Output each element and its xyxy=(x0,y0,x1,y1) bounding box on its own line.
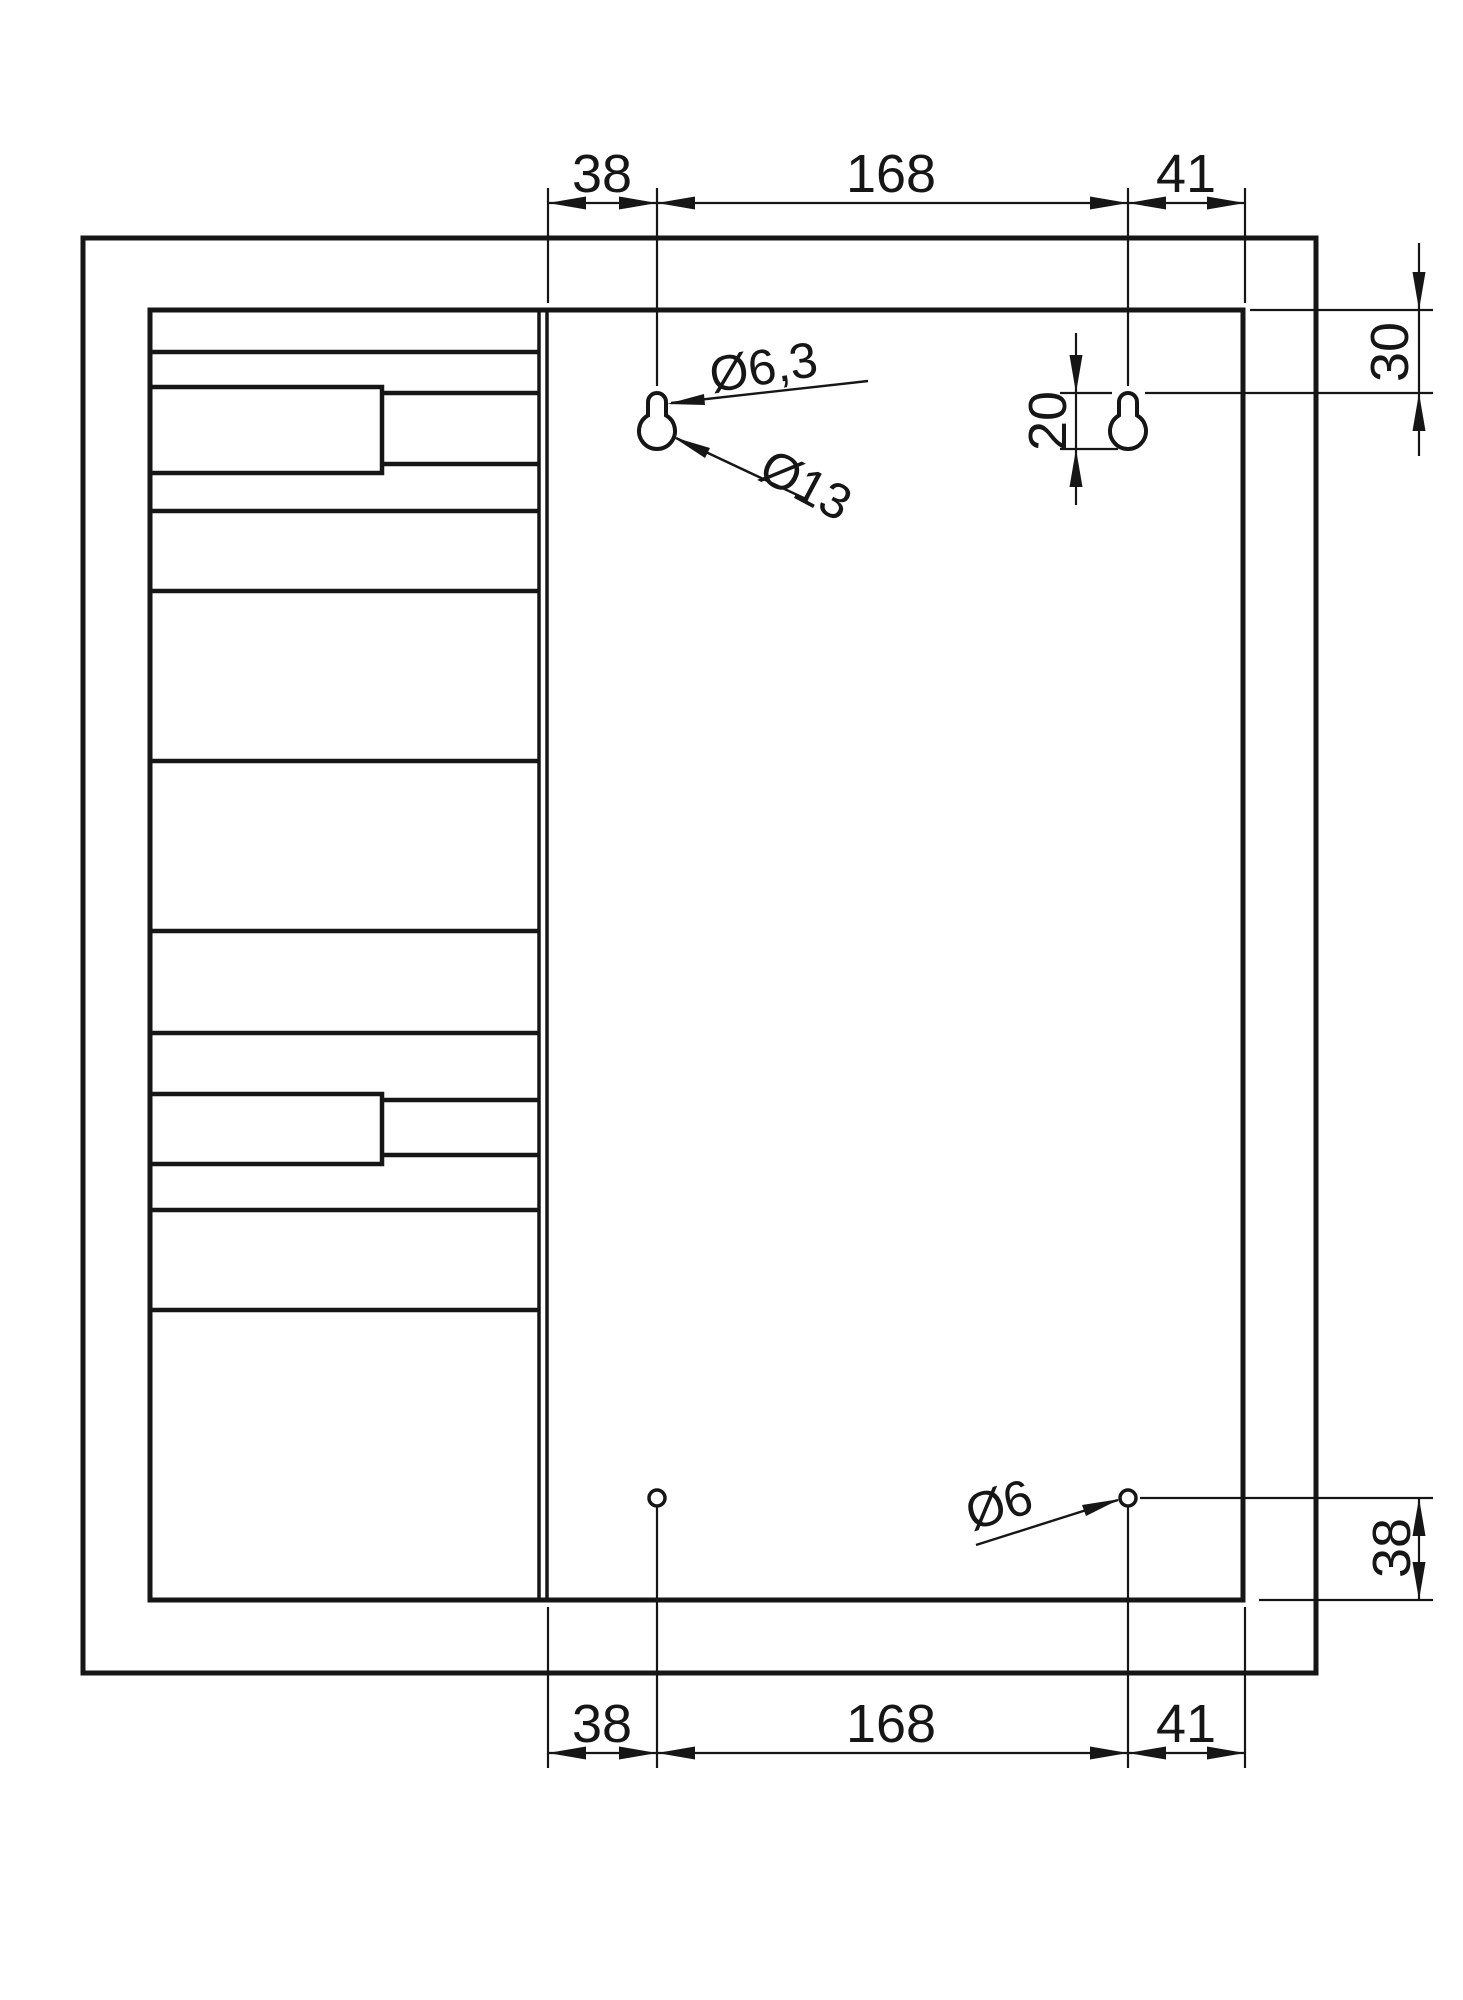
keyhole-top-right xyxy=(1110,393,1146,449)
din-panel-rows xyxy=(150,352,539,1310)
dim-keyhole-20: 20 xyxy=(1018,391,1078,451)
mounting-holes xyxy=(639,393,1146,1506)
dim-right-30: 30 xyxy=(1360,322,1420,382)
dim-bottom-168: 168 xyxy=(846,1694,936,1754)
callout-slot-diameter: Ø6,3 xyxy=(705,331,821,403)
dim-top-38: 38 xyxy=(572,144,632,204)
hole-bottom-left xyxy=(649,1490,665,1506)
din-rail-tab-upper xyxy=(150,387,539,473)
keyhole-top-left xyxy=(639,393,675,449)
dim-right-38: 38 xyxy=(1362,1518,1422,1578)
dim-top-168: 168 xyxy=(846,144,936,204)
callout-hole-diameter: Ø6 xyxy=(959,1468,1039,1541)
dim-bottom-38: 38 xyxy=(572,1694,632,1754)
callout-circle-diameter: Ø13 xyxy=(751,438,861,532)
dimension-labels: 38 168 41 38 168 41 30 20 38 Ø6,3 Ø13 Ø6 xyxy=(572,144,1422,1754)
dim-top-41: 41 xyxy=(1156,144,1216,204)
hole-bottom-right xyxy=(1120,1490,1136,1506)
din-rail-tab-lower xyxy=(150,1094,539,1164)
technical-drawing: 38 168 41 38 168 41 30 20 38 Ø6,3 Ø13 Ø6 xyxy=(0,0,1463,2000)
technical-drawing-page: 38 168 41 38 168 41 30 20 38 Ø6,3 Ø13 Ø6 xyxy=(0,0,1463,2000)
mounting-plate xyxy=(150,310,1243,1600)
dim-bottom-41: 41 xyxy=(1156,1694,1216,1754)
